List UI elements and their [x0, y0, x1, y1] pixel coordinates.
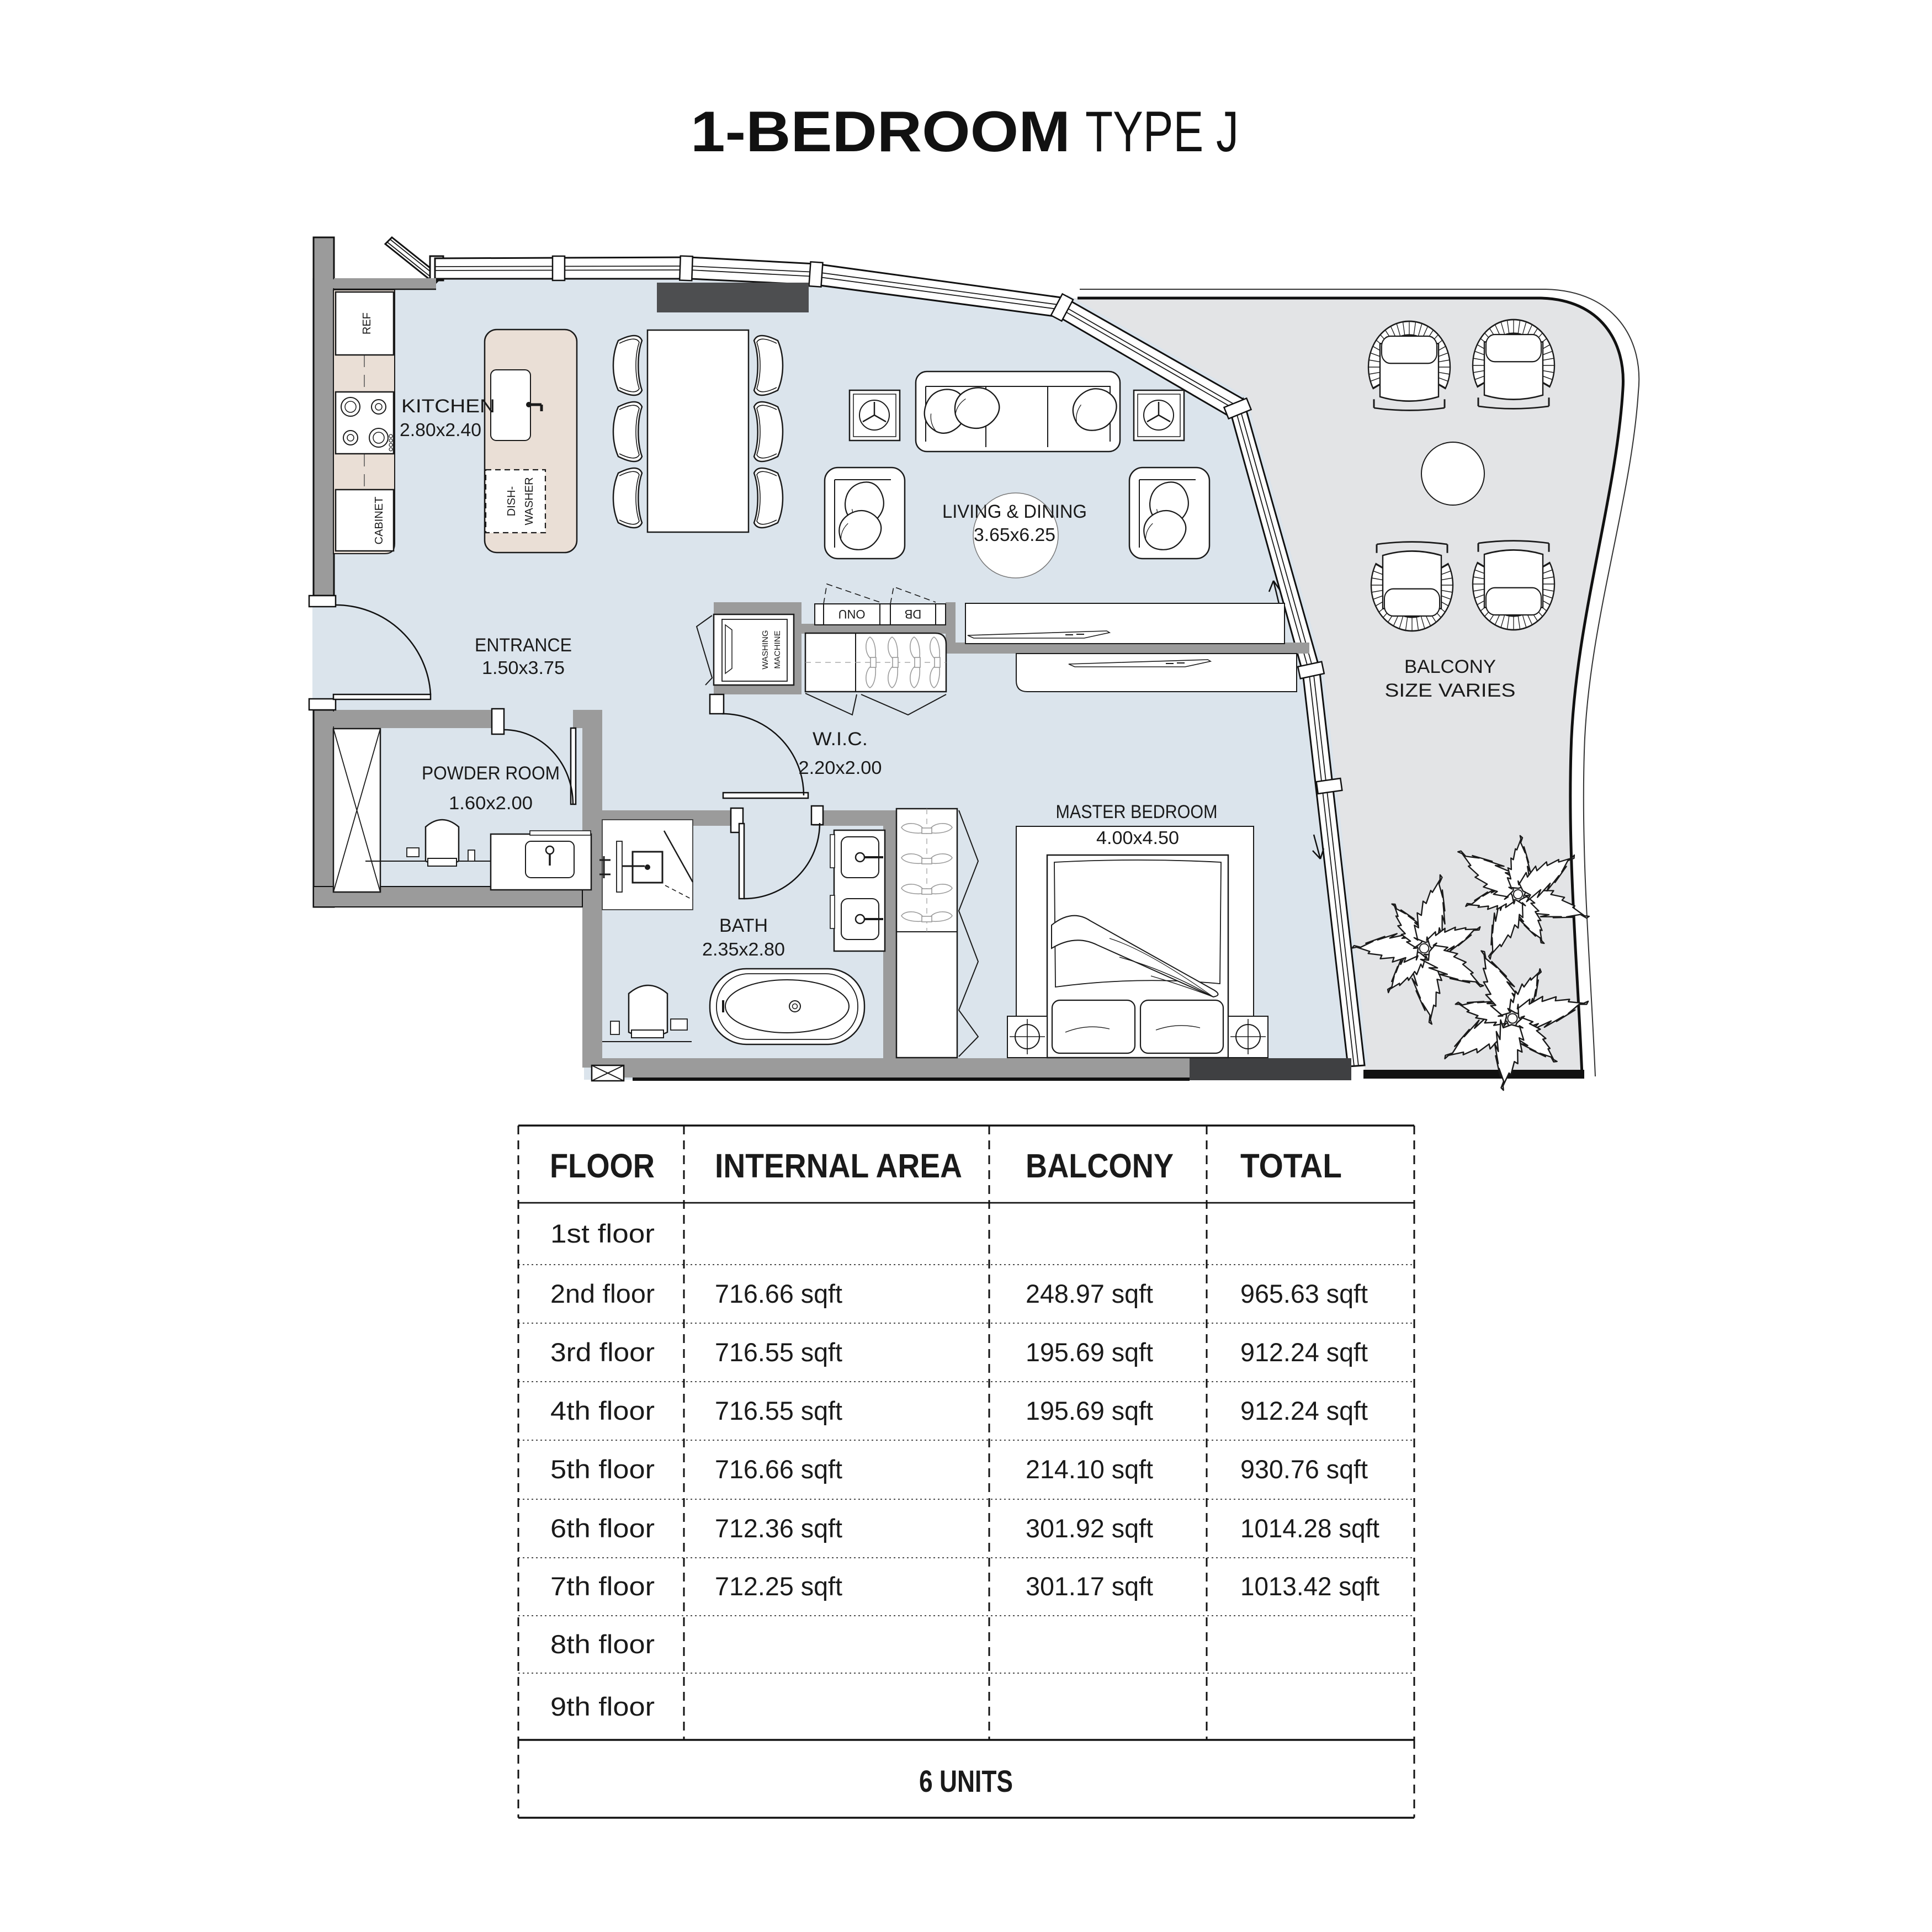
svg-text:1st floor: 1st floor: [550, 1219, 655, 1248]
svg-text:912.24 sqft: 912.24 sqft: [1240, 1337, 1368, 1367]
svg-text:712.25 sqft: 712.25 sqft: [715, 1572, 842, 1601]
svg-text:6 UNITS: 6 UNITS: [919, 1764, 1013, 1798]
svg-text:INTERNAL AREA: INTERNAL AREA: [715, 1147, 962, 1185]
svg-text:MACHINE: MACHINE: [773, 630, 782, 668]
svg-text:POWDER ROOM: POWDER ROOM: [422, 763, 560, 784]
svg-text:KITCHEN: KITCHEN: [401, 396, 495, 417]
svg-text:716.66 sqft: 716.66 sqft: [715, 1455, 842, 1484]
svg-text:TOTAL: TOTAL: [1240, 1147, 1342, 1185]
svg-text:2.35x2.80: 2.35x2.80: [702, 939, 785, 959]
svg-text:301.92 sqft: 301.92 sqft: [1026, 1514, 1153, 1543]
svg-text:MASTER BEDROOM: MASTER BEDROOM: [1056, 802, 1218, 822]
svg-text:BALCONY: BALCONY: [1404, 656, 1496, 677]
svg-text:FLOOR: FLOOR: [550, 1147, 655, 1185]
svg-text:716.55 sqft: 716.55 sqft: [715, 1337, 842, 1367]
svg-text:9th floor: 9th floor: [550, 1692, 655, 1721]
svg-text:CABINET: CABINET: [373, 497, 385, 545]
svg-text:BATH: BATH: [719, 915, 768, 936]
svg-text:214.10 sqft: 214.10 sqft: [1026, 1455, 1153, 1484]
svg-text:248.97 sqft: 248.97 sqft: [1026, 1279, 1153, 1308]
svg-text:2nd floor: 2nd floor: [550, 1279, 655, 1308]
svg-text:BALCONY: BALCONY: [1026, 1147, 1174, 1185]
svg-text:3.65x6.25: 3.65x6.25: [974, 524, 1055, 545]
svg-text:7th floor: 7th floor: [550, 1572, 655, 1601]
svg-text:W.I.C.: W.I.C.: [813, 729, 868, 750]
svg-text:WASHER: WASHER: [523, 477, 535, 525]
svg-text:3rd floor: 3rd floor: [550, 1337, 655, 1367]
svg-text:ONU: ONU: [838, 607, 866, 621]
svg-text:301.17 sqft: 301.17 sqft: [1026, 1572, 1153, 1601]
svg-text:5th floor: 5th floor: [550, 1455, 655, 1484]
svg-text:1.60x2.00: 1.60x2.00: [449, 793, 533, 813]
svg-text:WASHING: WASHING: [761, 630, 770, 669]
svg-text:6th floor: 6th floor: [550, 1514, 655, 1543]
svg-text:912.24 sqft: 912.24 sqft: [1240, 1396, 1368, 1425]
svg-text:1013.42 sqft: 1013.42 sqft: [1240, 1572, 1379, 1601]
svg-text:2.80x2.40: 2.80x2.40: [400, 420, 481, 440]
svg-text:1.50x3.75: 1.50x3.75: [482, 657, 565, 678]
svg-text:4.00x4.50: 4.00x4.50: [1096, 827, 1179, 848]
svg-text:716.55 sqft: 716.55 sqft: [715, 1396, 842, 1425]
svg-text:1-BEDROOMTYPE J: 1-BEDROOMTYPE J: [691, 100, 1239, 164]
svg-text:DISH-: DISH-: [506, 486, 518, 516]
svg-text:4th floor: 4th floor: [550, 1396, 655, 1425]
svg-text:195.69 sqft: 195.69 sqft: [1026, 1396, 1153, 1425]
svg-text:716.66 sqft: 716.66 sqft: [715, 1279, 842, 1308]
svg-text:DB: DB: [905, 607, 922, 621]
svg-text:ENTRANCE: ENTRANCE: [475, 635, 572, 656]
svg-text:930.76 sqft: 930.76 sqft: [1240, 1455, 1368, 1484]
svg-text:195.69 sqft: 195.69 sqft: [1026, 1337, 1153, 1367]
svg-text:2.20x2.00: 2.20x2.00: [799, 757, 882, 778]
svg-text:1014.28 sqft: 1014.28 sqft: [1240, 1514, 1379, 1543]
svg-text:712.36 sqft: 712.36 sqft: [715, 1514, 842, 1543]
svg-text:LIVING & DINING: LIVING & DINING: [942, 501, 1087, 522]
svg-text:965.63 sqft: 965.63 sqft: [1240, 1279, 1368, 1308]
svg-text:8th floor: 8th floor: [550, 1630, 655, 1659]
svg-text:SIZE VARIES: SIZE VARIES: [1385, 680, 1516, 701]
svg-text:REF: REF: [361, 312, 373, 335]
